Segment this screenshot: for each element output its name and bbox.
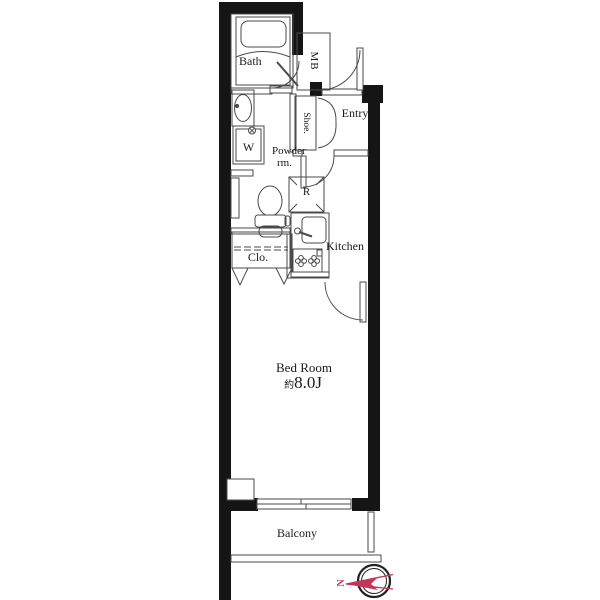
powder-room-label-line1: Powder <box>272 146 306 158</box>
stove-burner-left <box>296 255 307 266</box>
mb-label: MB <box>307 51 319 70</box>
kitchen-faucet-lever <box>299 232 312 237</box>
wall-step-box <box>227 479 254 500</box>
refrigerator-corner-mark <box>316 204 324 212</box>
bathtub-inner <box>241 21 286 47</box>
vanity-faucet-icon <box>235 104 238 107</box>
kitchen-label: Kitchen <box>326 240 364 253</box>
refrigerator-corner-mark <box>289 204 297 212</box>
bedroom-area-label: 約8.0J <box>263 374 343 393</box>
toilet-tank <box>255 215 286 227</box>
entry-label: Entry <box>330 107 380 120</box>
shoe-cabinet-door-bottom <box>318 123 336 148</box>
floor-plan: Bath MB Entry Shoe. Powder rm. W R Kitch… <box>0 0 600 600</box>
closet-label: Clo. <box>238 251 278 264</box>
balcony-label: Balcony <box>257 527 337 540</box>
stove-grill <box>317 250 322 256</box>
burner-petal <box>302 259 307 264</box>
powder-room-label-line2: rm. <box>272 158 306 170</box>
bath-door-leaf <box>277 62 298 86</box>
refrigerator-corner-mark <box>289 177 297 185</box>
burner-petal <box>315 259 320 264</box>
bedroom-area-value: 8.0J <box>294 373 322 392</box>
compass-north-label: N <box>337 579 348 586</box>
burner-petal <box>296 259 301 264</box>
mb-entry-wall-stub <box>310 82 322 96</box>
vanity-sink <box>232 90 254 126</box>
shoe-cabinet-label: Shoe. <box>300 112 310 133</box>
bedroom-door-leaf <box>360 282 366 322</box>
kitchen-unit <box>291 213 329 277</box>
balcony-partition <box>368 512 374 552</box>
refrigerator-corner-mark <box>316 177 324 185</box>
balcony-railing <box>231 555 381 562</box>
bottom-right-wall-corner <box>352 498 380 511</box>
floor-plan-drawing <box>0 0 600 600</box>
toilet-nook-wall <box>231 170 253 176</box>
top-wall <box>219 2 303 14</box>
bath-bottom-wall <box>231 88 272 94</box>
entry-wall-right <box>334 150 368 156</box>
closet-door-left <box>232 268 248 285</box>
powder-room-label: Powder rm. <box>272 146 306 169</box>
toilet-bowl <box>258 186 282 216</box>
kitchen-sink <box>302 217 326 243</box>
toilet-partition <box>231 178 239 218</box>
refrigerator-label: R <box>296 187 317 199</box>
bedroom-door-arc <box>325 282 363 320</box>
bath-label: Bath <box>239 55 262 68</box>
bedroom-area-prefix: 約 <box>284 380 294 391</box>
compass <box>346 565 393 597</box>
stove <box>293 249 322 272</box>
burner-petal <box>309 259 314 264</box>
entry-door-arc <box>320 50 360 90</box>
washer-label: W <box>238 141 259 154</box>
stove-burner-right <box>309 255 320 266</box>
right-wall <box>368 100 380 500</box>
bath-room-outline <box>231 14 293 88</box>
